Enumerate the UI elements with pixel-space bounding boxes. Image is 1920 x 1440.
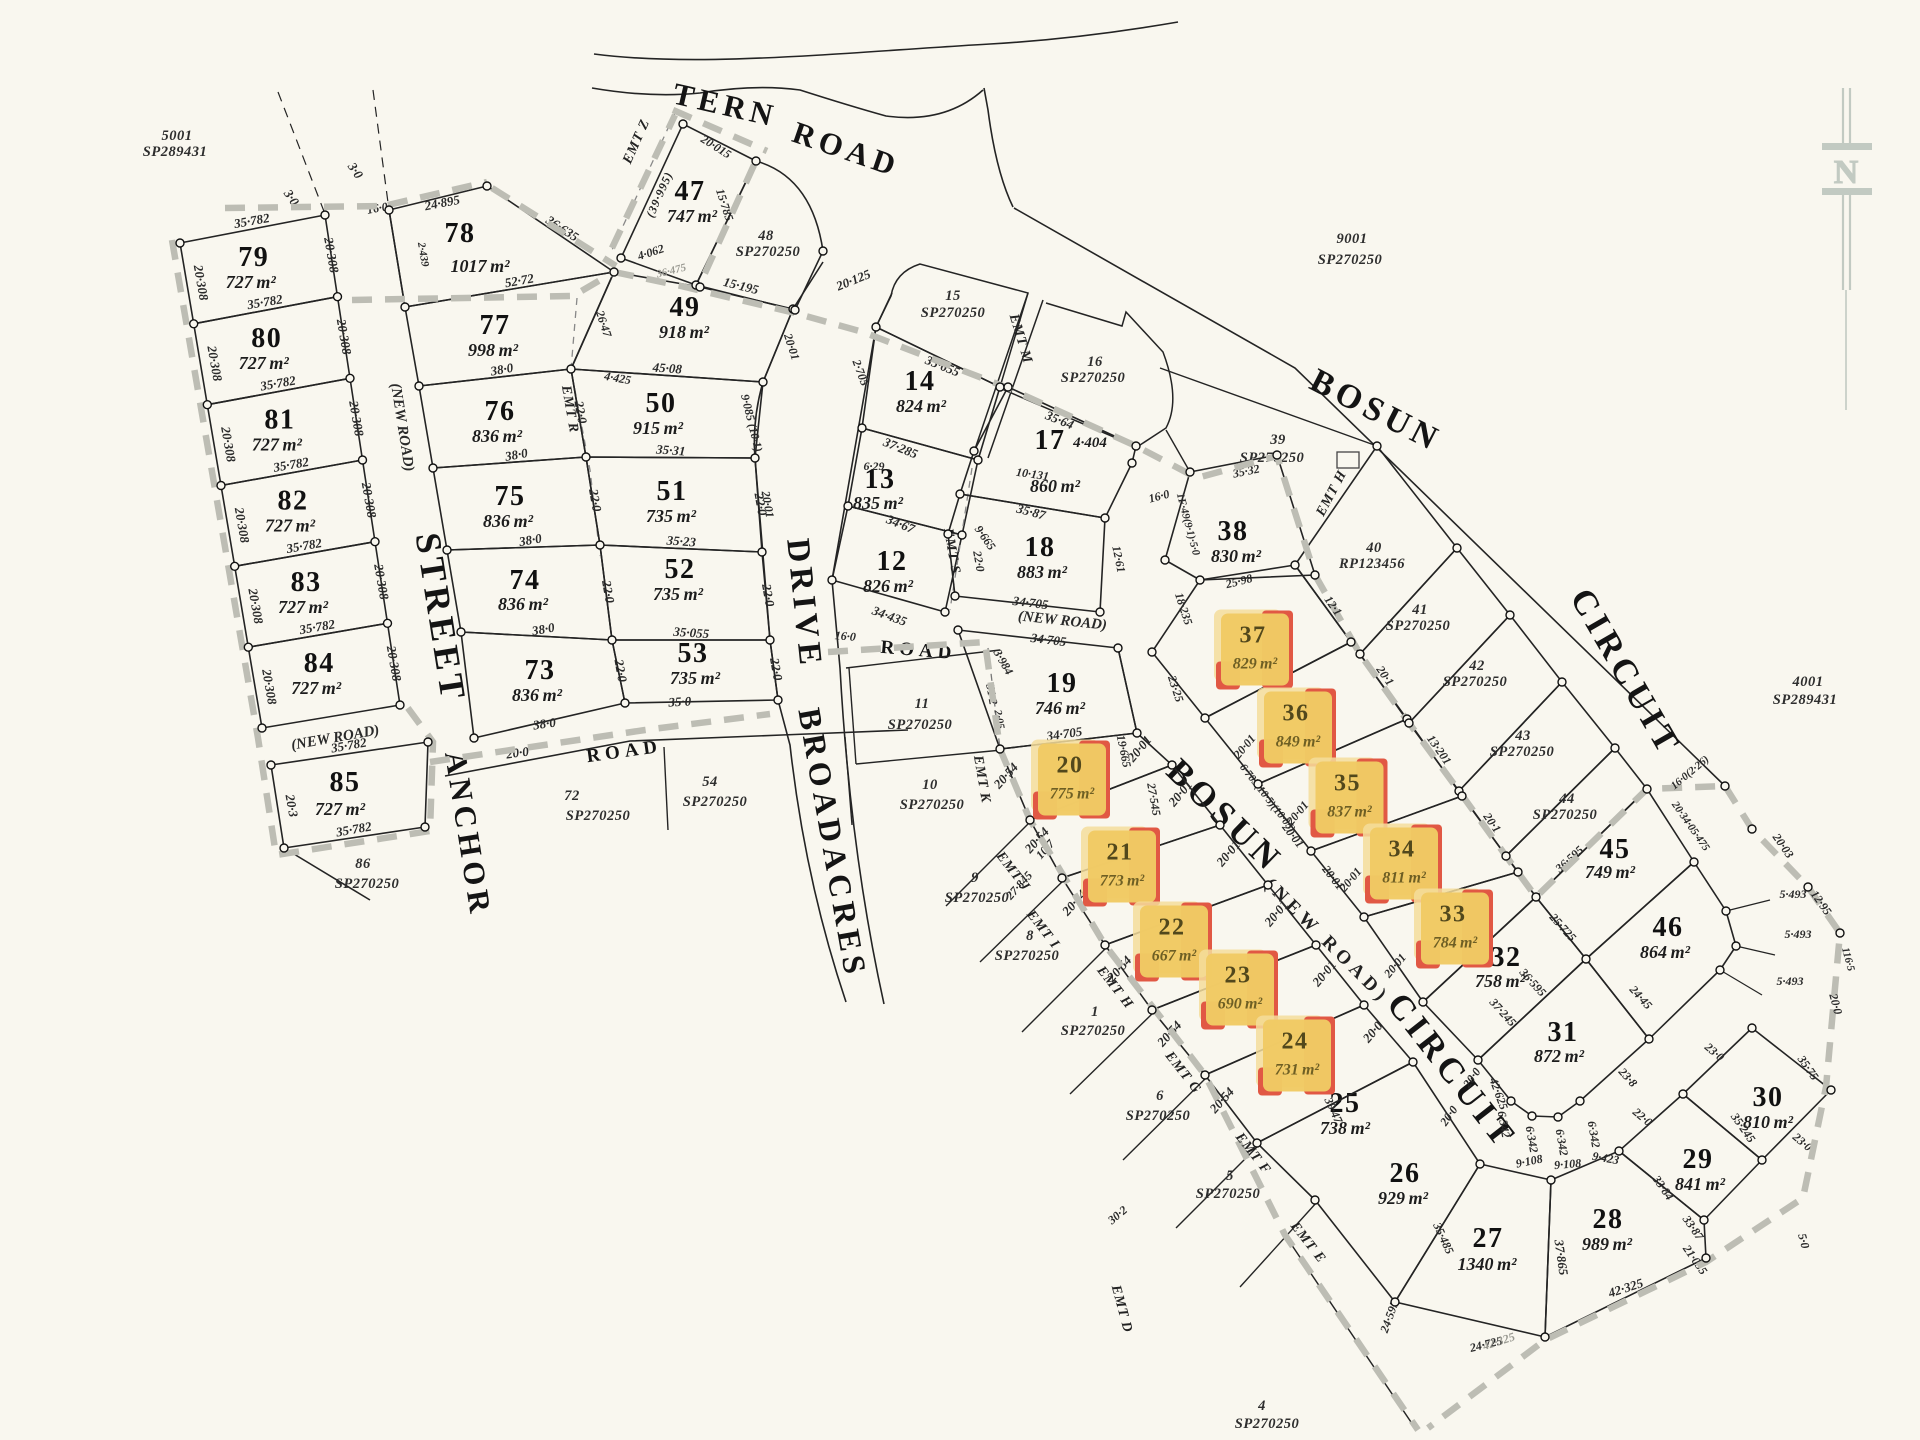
svg-text:31: 31 [1548, 1017, 1579, 1048]
svg-text:SP270250: SP270250 [1443, 674, 1507, 690]
svg-text:24: 24 [1282, 1029, 1309, 1055]
svg-text:75: 75 [495, 481, 526, 512]
svg-text:773 m²: 773 m² [1100, 873, 1146, 890]
svg-text:731 m²: 731 m² [1275, 1062, 1321, 1079]
svg-text:727 m²: 727 m² [265, 516, 316, 536]
svg-text:77: 77 [480, 310, 511, 341]
svg-text:824 m²: 824 m² [896, 396, 947, 416]
svg-text:836 m²: 836 m² [512, 685, 563, 705]
svg-text:83: 83 [291, 567, 322, 598]
svg-text:929 m²: 929 m² [1378, 1188, 1429, 1208]
svg-text:SP270250: SP270250 [1318, 252, 1382, 268]
svg-text:32: 32 [1491, 942, 1522, 973]
svg-text:1: 1 [1091, 1004, 1099, 1020]
svg-text:6: 6 [1156, 1088, 1164, 1104]
svg-text:11: 11 [915, 696, 930, 712]
svg-text:735 m²: 735 m² [653, 584, 704, 604]
svg-text:RP123456: RP123456 [1338, 556, 1405, 572]
svg-text:49: 49 [670, 292, 701, 323]
svg-text:727 m²: 727 m² [315, 799, 366, 819]
svg-text:86: 86 [355, 856, 371, 872]
svg-text:84: 84 [304, 648, 335, 679]
svg-text:4·404: 4·404 [1072, 435, 1107, 451]
svg-text:SP289431: SP289431 [1773, 692, 1837, 708]
svg-text:35: 35 [1334, 771, 1361, 797]
svg-text:10: 10 [922, 777, 938, 793]
svg-text:SP270250: SP270250 [900, 797, 964, 813]
svg-text:836 m²: 836 m² [483, 511, 534, 531]
svg-text:34: 34 [1389, 837, 1416, 863]
svg-text:811 m²: 811 m² [1382, 870, 1427, 887]
svg-text:73: 73 [525, 655, 556, 686]
svg-text:47: 47 [675, 176, 706, 207]
svg-text:51: 51 [657, 476, 688, 507]
svg-text:17: 17 [1035, 425, 1066, 456]
svg-text:747 m²: 747 m² [667, 206, 718, 226]
svg-text:SP270250: SP270250 [1386, 618, 1450, 634]
svg-text:41: 41 [1411, 602, 1428, 618]
svg-text:9001: 9001 [1337, 231, 1368, 247]
svg-text:SP270250: SP270250 [921, 305, 985, 321]
svg-text:727 m²: 727 m² [239, 353, 290, 373]
svg-text:9: 9 [971, 870, 979, 886]
svg-text:836 m²: 836 m² [472, 426, 523, 446]
svg-text:SP270250: SP270250 [1126, 1108, 1190, 1124]
svg-text:23: 23 [1225, 963, 1252, 989]
svg-text:45: 45 [1600, 834, 1631, 865]
svg-text:6·29: 6·29 [864, 459, 885, 473]
svg-text:749 m²: 749 m² [1585, 862, 1636, 882]
svg-text:53: 53 [678, 638, 709, 669]
svg-text:829 m²: 829 m² [1233, 656, 1279, 673]
svg-text:SP270250: SP270250 [1235, 1416, 1299, 1432]
svg-text:74: 74 [510, 565, 541, 596]
svg-text:727 m²: 727 m² [252, 434, 303, 454]
svg-text:SP270250: SP270250 [683, 794, 747, 810]
svg-text:667 m²: 667 m² [1152, 948, 1198, 965]
svg-text:27: 27 [1473, 1223, 1504, 1254]
svg-text:SP270250: SP270250 [888, 717, 952, 733]
svg-text:836 m²: 836 m² [498, 594, 549, 614]
svg-text:19: 19 [1047, 668, 1078, 699]
svg-text:841 m²: 841 m² [1675, 1174, 1726, 1194]
svg-text:43: 43 [1514, 728, 1531, 744]
svg-text:14: 14 [905, 366, 936, 397]
svg-text:SP270250: SP270250 [1490, 744, 1554, 760]
svg-text:80: 80 [251, 323, 282, 354]
svg-text:48: 48 [757, 228, 774, 244]
svg-text:SP270250: SP270250 [1061, 370, 1125, 386]
svg-text:50: 50 [646, 388, 677, 419]
svg-text:SP289431: SP289431 [143, 144, 207, 160]
svg-text:12: 12 [877, 546, 908, 577]
svg-text:989 m²: 989 m² [1582, 1234, 1633, 1254]
svg-text:85: 85 [330, 767, 361, 798]
svg-text:727 m²: 727 m² [291, 678, 342, 698]
svg-text:54: 54 [702, 774, 718, 790]
svg-text:16: 16 [1087, 354, 1103, 370]
svg-text:849 m²: 849 m² [1276, 734, 1322, 751]
svg-text:33: 33 [1440, 902, 1467, 928]
svg-text:727 m²: 727 m² [226, 272, 277, 292]
svg-text:72: 72 [564, 788, 580, 804]
svg-text:79: 79 [238, 242, 269, 273]
svg-text:40: 40 [1365, 540, 1382, 556]
svg-text:5001: 5001 [162, 128, 193, 144]
svg-text:39: 39 [1269, 432, 1286, 448]
svg-text:N: N [1834, 154, 1859, 191]
svg-text:22: 22 [1159, 915, 1186, 941]
svg-text:28: 28 [1593, 1204, 1624, 1235]
svg-text:830 m²: 830 m² [1211, 546, 1262, 566]
svg-text:738 m²: 738 m² [1320, 1118, 1371, 1138]
svg-text:37: 37 [1240, 623, 1267, 649]
svg-text:1340 m²: 1340 m² [1457, 1254, 1517, 1274]
svg-text:690 m²: 690 m² [1218, 996, 1264, 1013]
svg-text:20: 20 [1057, 753, 1084, 779]
svg-text:42: 42 [1468, 658, 1485, 674]
svg-text:81: 81 [264, 404, 295, 435]
svg-text:4001: 4001 [1792, 674, 1824, 690]
svg-text:SP270250: SP270250 [566, 808, 630, 824]
svg-text:5·493: 5·493 [1777, 974, 1804, 988]
svg-text:784 m²: 784 m² [1433, 935, 1479, 952]
svg-text:5·493: 5·493 [1785, 927, 1812, 941]
svg-text:26: 26 [1390, 1158, 1421, 1189]
svg-text:5: 5 [1226, 1168, 1234, 1184]
svg-text:1017 m²: 1017 m² [450, 256, 510, 276]
svg-text:SP270250: SP270250 [1061, 1023, 1125, 1039]
svg-text:826 m²: 826 m² [863, 576, 914, 596]
svg-text:35·0: 35·0 [667, 693, 692, 709]
svg-text:SP270250: SP270250 [945, 890, 1009, 906]
svg-text:872 m²: 872 m² [1534, 1046, 1585, 1066]
svg-text:46: 46 [1653, 912, 1684, 943]
svg-text:21: 21 [1107, 840, 1134, 866]
svg-text:SP270250: SP270250 [335, 876, 399, 892]
svg-text:775 m²: 775 m² [1050, 786, 1096, 803]
svg-text:35·31: 35·31 [655, 441, 686, 458]
svg-text:76: 76 [485, 396, 516, 427]
svg-text:746 m²: 746 m² [1035, 698, 1086, 718]
svg-text:915 m²: 915 m² [633, 418, 684, 438]
svg-text:29: 29 [1683, 1144, 1714, 1175]
svg-text:998 m²: 998 m² [468, 340, 519, 360]
svg-text:8: 8 [1026, 928, 1034, 944]
svg-text:883 m²: 883 m² [1017, 562, 1068, 582]
svg-text:16·0: 16·0 [834, 628, 856, 644]
svg-text:837 m²: 837 m² [1327, 804, 1373, 821]
svg-text:36: 36 [1283, 701, 1310, 727]
svg-text:18: 18 [1025, 532, 1056, 563]
svg-text:78: 78 [445, 218, 476, 249]
svg-text:15: 15 [945, 288, 961, 304]
svg-text:SP270250: SP270250 [1196, 1186, 1260, 1202]
svg-text:35·23: 35·23 [665, 532, 697, 549]
svg-text:9·108: 9·108 [1554, 1156, 1582, 1172]
svg-text:735 m²: 735 m² [646, 506, 697, 526]
svg-text:5·493: 5·493 [1780, 887, 1807, 901]
svg-text:727 m²: 727 m² [278, 597, 329, 617]
svg-text:735 m²: 735 m² [670, 668, 721, 688]
svg-text:45·08: 45·08 [651, 359, 683, 376]
svg-text:SP270250: SP270250 [736, 244, 800, 260]
svg-text:918 m²: 918 m² [659, 322, 710, 342]
svg-text:35·055: 35·055 [672, 624, 710, 642]
svg-text:4: 4 [1257, 1398, 1266, 1414]
svg-text:SP270250: SP270250 [1533, 807, 1597, 823]
svg-text:44: 44 [1558, 791, 1575, 807]
svg-text:864 m²: 864 m² [1640, 942, 1691, 962]
svg-text:52: 52 [665, 554, 696, 585]
svg-text:82: 82 [278, 486, 309, 517]
svg-text:30: 30 [1753, 1082, 1784, 1113]
svg-text:38: 38 [1218, 516, 1249, 547]
